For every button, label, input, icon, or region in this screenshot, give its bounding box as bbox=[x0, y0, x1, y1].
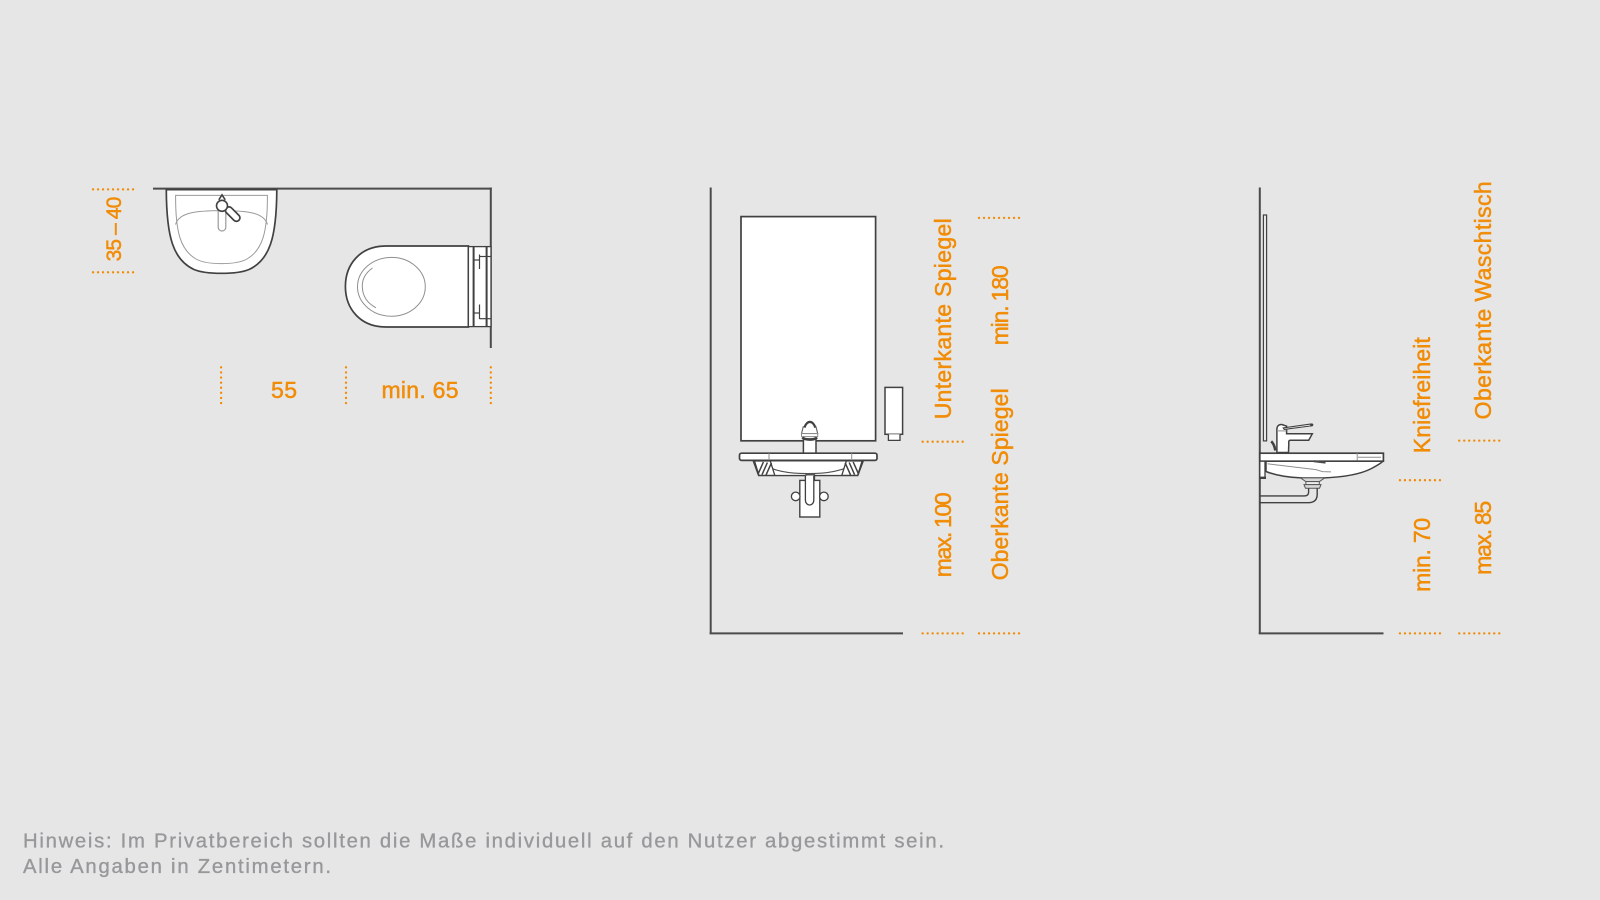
svg-text:min. 65: min. 65 bbox=[382, 377, 459, 403]
svg-text:max. 85: max. 85 bbox=[1470, 501, 1496, 575]
svg-text:35 – 40: 35 – 40 bbox=[103, 197, 126, 261]
svg-text:Oberkante Spiegel: Oberkante Spiegel bbox=[987, 388, 1013, 580]
svg-text:min. 70: min. 70 bbox=[1409, 518, 1435, 592]
svg-text:Kniefreiheit: Kniefreiheit bbox=[1409, 337, 1435, 454]
svg-text:Unterkante Spiegel: Unterkante Spiegel bbox=[930, 218, 956, 419]
svg-text:min. 180: min. 180 bbox=[987, 265, 1013, 345]
svg-text:Alle Angaben in Zentimetern.: Alle Angaben in Zentimetern. bbox=[23, 856, 331, 878]
svg-text:Hinweis: Im Privatbereich soll: Hinweis: Im Privatbereich sollten die Ma… bbox=[23, 831, 944, 853]
svg-text:55: 55 bbox=[271, 377, 297, 403]
svg-text:max. 100: max. 100 bbox=[930, 492, 956, 577]
svg-text:Oberkante Waschtisch: Oberkante Waschtisch bbox=[1470, 181, 1496, 419]
